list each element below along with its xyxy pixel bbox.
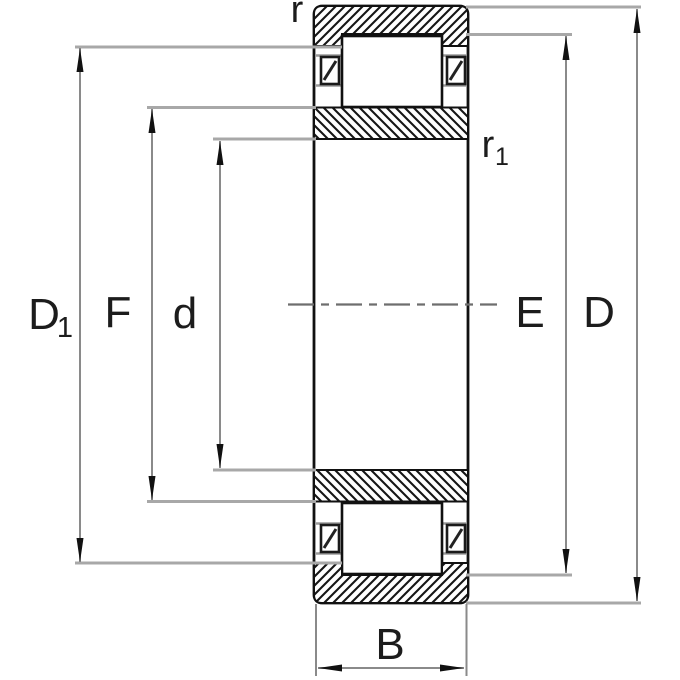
arrow-right (440, 665, 464, 672)
label-E: E (515, 288, 544, 337)
label-B: B (375, 620, 404, 669)
label-D: D (583, 288, 615, 337)
label-F: F (105, 288, 132, 337)
roller-top (342, 36, 442, 107)
dimension-B: B (316, 604, 467, 676)
arrow-up (217, 141, 224, 165)
roller-bottom (342, 503, 442, 574)
arrow-up (634, 9, 641, 33)
arrow-up (149, 109, 156, 133)
arrow-down (217, 444, 224, 468)
arrow-left (318, 665, 342, 672)
label-r1-subscript: 1 (495, 143, 509, 171)
label-r1-main: r (482, 124, 495, 166)
arrow-down (77, 538, 84, 562)
inner-ring-top-section (314, 108, 468, 140)
arrow-down (149, 476, 156, 500)
bearing-diagram: D 1 F d E D (0, 0, 680, 680)
label-r: r (291, 0, 304, 31)
label-D1: D (28, 290, 60, 339)
arrow-down (563, 549, 570, 573)
label-D1-subscript: 1 (57, 312, 73, 344)
arrow-up (563, 36, 570, 60)
label-d: d (173, 289, 197, 338)
inner-ring-bottom-section (314, 470, 468, 502)
arrow-up (77, 48, 84, 72)
dimension-F: F (105, 108, 316, 502)
label-r1: r 1 (482, 124, 509, 171)
arrow-down (634, 577, 641, 601)
